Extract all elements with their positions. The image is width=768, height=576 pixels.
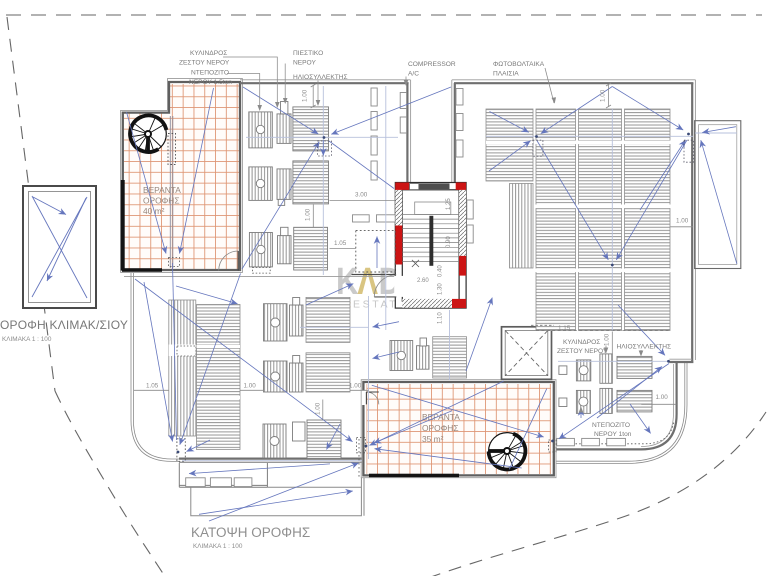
- svg-text:ΦΩΤΟΒΟΛΤΑΙΚΑ: ΦΩΤΟΒΟΛΤΑΙΚΑ: [493, 61, 545, 68]
- svg-text:0.40: 0.40: [438, 265, 444, 277]
- svg-text:K: K: [336, 261, 359, 303]
- svg-text:1.30: 1.30: [438, 283, 444, 295]
- svg-text:1.00: 1.00: [656, 394, 669, 401]
- svg-text:ΝΕΡΟΥ 1ton: ΝΕΡΟΥ 1ton: [594, 431, 632, 438]
- svg-text:ΝΤΕΠΟΖΙΤΟ: ΝΤΕΠΟΖΙΤΟ: [592, 422, 630, 429]
- svg-text:ΝΕΡΟΥ 1.5ton: ΝΕΡΟΥ 1.5ton: [189, 79, 232, 86]
- svg-text:ΚΛΙΜΑΚΑ 1 : 100: ΚΛΙΜΑΚΑ 1 : 100: [2, 336, 52, 343]
- svg-text:1.15: 1.15: [558, 325, 571, 332]
- svg-text:ΟΡΟΦΗ ΚΛΙΜΑΚ/ΣΙΟΥ: ΟΡΟΦΗ ΚΛΙΜΑΚ/ΣΙΟΥ: [0, 318, 128, 332]
- svg-text:ΚΑΤΟΨΗ ΟΡΟΦΗΣ: ΚΑΤΟΨΗ ΟΡΟΦΗΣ: [191, 525, 310, 540]
- svg-text:1.10: 1.10: [438, 312, 444, 324]
- svg-text:0.90: 0.90: [446, 236, 452, 248]
- svg-text:1.00: 1.00: [302, 89, 309, 102]
- svg-text:ΠΙΕΣΤΙΚΟ: ΠΙΕΣΤΙΚΟ: [293, 50, 323, 57]
- svg-text:ΟΡΟΦΗΣ: ΟΡΟΦΗΣ: [422, 423, 459, 433]
- svg-text:1.00: 1.00: [676, 218, 689, 225]
- svg-text:ΒΕΡΑΝΤΑ: ΒΕΡΑΝΤΑ: [143, 185, 181, 195]
- svg-text:ΝΕΡΟΥ: ΝΕΡΟΥ: [293, 60, 316, 67]
- svg-text:1.00: 1.00: [244, 382, 257, 389]
- svg-text:ΖΕΣΤΟΥ ΝΕΡΟΥ: ΖΕΣΤΟΥ ΝΕΡΟΥ: [557, 348, 608, 355]
- svg-text:1.05: 1.05: [334, 240, 347, 247]
- svg-text:A/C: A/C: [408, 71, 419, 78]
- svg-text:1.00: 1.00: [305, 208, 312, 221]
- svg-text:ΚΥΛΙΝΔΡΟΣ: ΚΥΛΙΝΔΡΟΣ: [563, 339, 600, 346]
- svg-text:ΗΛΙΟΣΥΛΛΕΚΤΗΣ: ΗΛΙΟΣΥΛΛΕΚΤΗΣ: [617, 344, 672, 351]
- svg-text:1.00: 1.00: [604, 333, 611, 346]
- svg-text:1.00: 1.00: [315, 402, 322, 415]
- svg-text:3.00: 3.00: [355, 192, 368, 199]
- svg-text:35 m²: 35 m²: [422, 434, 444, 444]
- svg-text:ΝΤΕΠΟΖΙΤΟ: ΝΤΕΠΟΖΙΤΟ: [191, 70, 229, 77]
- svg-text:ΗΛΙΟΣΥΛΛΕΚΤΗΣ: ΗΛΙΟΣΥΛΛΕΚΤΗΣ: [293, 74, 348, 81]
- svg-text:2.60: 2.60: [417, 278, 429, 284]
- svg-text:ΚΥΛΙΝΔΡΟΣ: ΚΥΛΙΝΔΡΟΣ: [190, 50, 227, 57]
- svg-text:1.00: 1.00: [349, 382, 362, 389]
- svg-text:ΠΛΑΙΣΙΑ: ΠΛΑΙΣΙΑ: [493, 71, 519, 78]
- svg-text:ΖΕΣΤΟΥ ΝΕΡΟΥ: ΖΕΣΤΟΥ ΝΕΡΟΥ: [179, 60, 230, 67]
- svg-text:1.05: 1.05: [146, 382, 159, 389]
- svg-text:COMPRESSOR: COMPRESSOR: [408, 61, 456, 68]
- svg-text:ΚΛΙΜΑΚΑ 1 : 100: ΚΛΙΜΑΚΑ 1 : 100: [193, 543, 243, 550]
- svg-text:1.25: 1.25: [446, 198, 452, 210]
- svg-text:ΟΡΟΦΗΣ: ΟΡΟΦΗΣ: [143, 196, 180, 206]
- svg-text:1.00: 1.00: [600, 89, 607, 102]
